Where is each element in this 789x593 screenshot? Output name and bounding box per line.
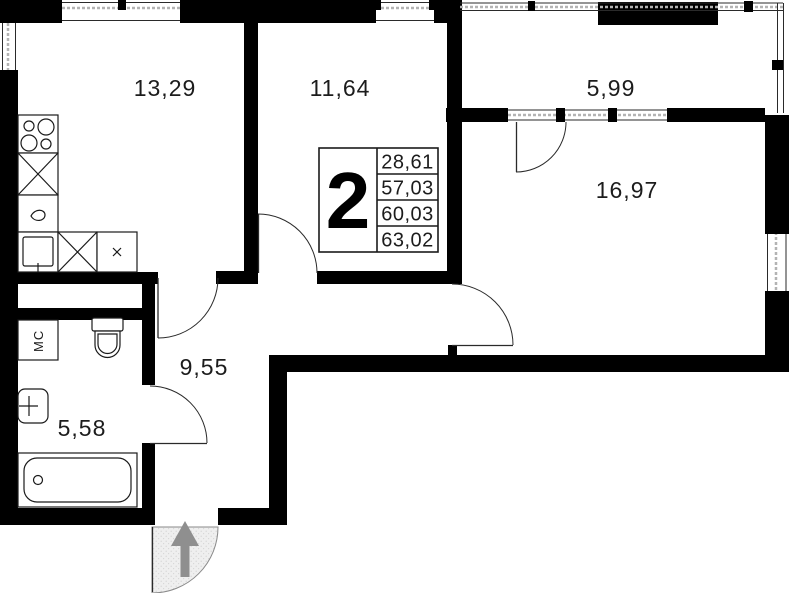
toilet-icon	[92, 318, 123, 357]
unit-area-3: 60,03	[381, 204, 434, 226]
window-left-wall	[3, 23, 16, 70]
area-label-living-room: 16,97	[596, 177, 659, 203]
window-living-right	[765, 229, 789, 296]
unit-number: 2	[326, 156, 371, 245]
unit-stats-table: 2 28,61 57,03 60,03 63,02	[319, 148, 438, 252]
area-label-bathroom: 5,58	[58, 415, 107, 441]
door-living	[452, 284, 513, 346]
door-bathroom	[150, 386, 207, 444]
window-kitchen	[62, 0, 180, 21]
bathroom-sink-icon	[18, 389, 48, 423]
balcony-glazing-right	[772, 3, 784, 113]
kitchen-sink-icon	[18, 232, 58, 272]
door-bedroom	[258, 214, 317, 273]
counter-small-x-icon	[97, 232, 137, 272]
bathtub-icon	[18, 453, 137, 507]
room-labels: 13,29 11,64 5,99 16,97 9,55 5,58	[58, 75, 659, 441]
counter-drop-icon	[18, 195, 58, 232]
stove-icon	[18, 115, 58, 153]
unit-area-2: 57,03	[381, 178, 434, 200]
washing-machine-icon: МС	[18, 320, 58, 360]
balcony-glazing-top	[460, 1, 783, 12]
door-kitchen	[158, 278, 218, 338]
counter-x-icon	[58, 232, 97, 272]
area-label-hallway: 9,55	[180, 354, 229, 380]
window-bedroom	[374, 0, 436, 21]
door-balcony	[516, 122, 566, 172]
cabinet-x-icon	[18, 153, 58, 195]
area-label-balcony: 5,99	[587, 75, 636, 101]
floor-plan: МС 2 28,61 57,03 60,03 63,02 13,29 11,64…	[0, 0, 789, 593]
washing-machine-label: МС	[31, 330, 46, 352]
area-label-bedroom: 11,64	[310, 75, 371, 101]
unit-area-4: 63,02	[381, 230, 434, 252]
floor-plan-svg: МС 2 28,61 57,03 60,03 63,02 13,29 11,64…	[0, 0, 789, 593]
unit-area-1: 28,61	[381, 152, 434, 174]
area-label-kitchen-living: 13,29	[134, 75, 197, 101]
window-balcony-divider	[508, 108, 667, 122]
